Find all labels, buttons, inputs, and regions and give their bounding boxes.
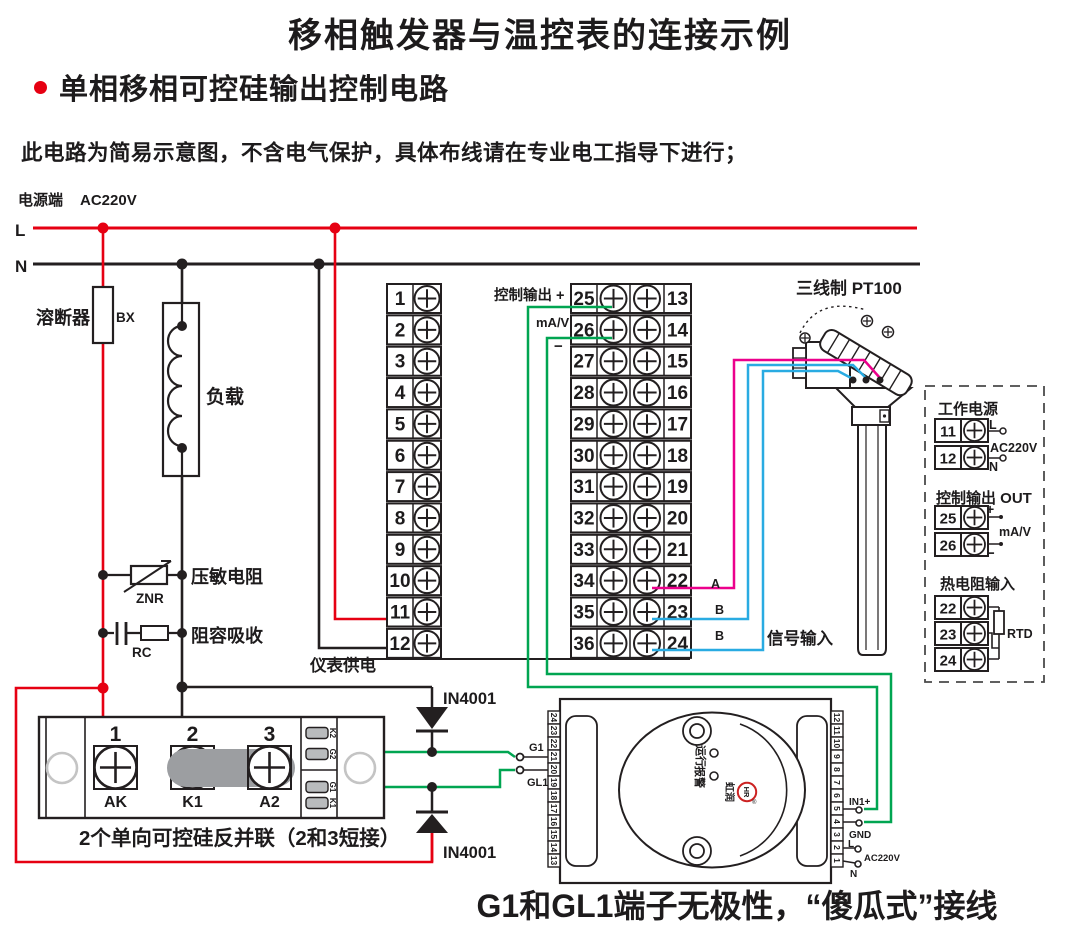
- scr-module: 2个单向可控硅反并联（2和3短接） 1AK2K13A2K2G2G1K1: [39, 717, 400, 850]
- terminal-row: 4: [387, 378, 441, 407]
- terminal-row: 3018: [571, 441, 691, 470]
- terminal-number: 3: [395, 352, 406, 373]
- terminal-number: 14: [549, 843, 559, 853]
- junction-dot: [177, 321, 187, 331]
- scr-terminal-number: 1: [110, 723, 122, 746]
- junction-dot: [98, 628, 108, 638]
- terminal-number: 6: [395, 446, 406, 467]
- hinge-screw-icon: [800, 333, 810, 343]
- run-led-icon: [710, 749, 718, 757]
- varistor-label: 压敏电阻: [191, 566, 263, 587]
- terminal-number: 1: [832, 858, 842, 863]
- terminal-number: 14: [667, 320, 689, 341]
- controller-terminal-block: 1234567891011122513261427152816291730183…: [387, 284, 691, 658]
- terminal-number: 28: [573, 383, 594, 404]
- diode-bottom-label: IN4001: [443, 844, 496, 862]
- junction-dot: [98, 223, 109, 234]
- sensor-wire-dot: [877, 377, 884, 384]
- brand-logo-text: HR: [742, 787, 751, 798]
- trigger-right-terminal: 5: [831, 802, 843, 815]
- terminal-number: 20: [549, 765, 559, 775]
- terminal-number: 25: [940, 511, 957, 528]
- fuse-symbol: [93, 287, 113, 343]
- circuit-diagram: 电源端 AC220V L N 溶断器 BX 负载: [0, 0, 1080, 948]
- trigger-left-terminal: 23: [548, 724, 560, 737]
- terminal-number: 21: [549, 752, 559, 762]
- terminal-number: 23: [940, 627, 957, 644]
- gate-label: G2: [328, 749, 337, 760]
- legend-rtd-label: RTD: [1007, 627, 1033, 641]
- trigger-right-terminal: 2: [831, 841, 843, 854]
- trigger-right-terminal: 6: [831, 789, 843, 802]
- trigger-right-terminal: 8: [831, 763, 843, 776]
- legend-terminal-row: 22: [935, 596, 988, 619]
- pt100-sensor: 三线制 PT100: [793, 278, 915, 655]
- trigger-left-terminal: 16: [548, 815, 560, 828]
- scr-caption: 2个单向可控硅反并联（2和3短接）: [79, 826, 400, 850]
- terminal-number: 8: [395, 508, 406, 529]
- gate-label: K2: [328, 728, 337, 739]
- trigger-left-terminal: 14: [548, 841, 560, 854]
- diode-top-label: IN4001: [443, 690, 496, 708]
- legend-l-ring: [1000, 428, 1006, 434]
- terminal-number: 5: [395, 414, 406, 435]
- terminal-number: 4: [395, 383, 406, 404]
- gate-pad: [306, 798, 328, 809]
- terminal-number: 13: [549, 856, 559, 866]
- diode-triangle-icon: [416, 814, 448, 833]
- terminal-number: 19: [549, 778, 559, 788]
- terminal-row: 2917: [571, 409, 691, 438]
- scr-terminal-label: K1: [182, 794, 203, 811]
- terminal-number: 32: [573, 508, 594, 529]
- terminal-number: 26: [940, 538, 957, 555]
- gate-terminal: K2: [306, 728, 337, 739]
- terminal-number: 18: [549, 791, 559, 801]
- terminal-row: 6: [387, 441, 441, 470]
- controller-output-labels: 控制输出 + mA/V −: [494, 286, 570, 355]
- varistor-code: ZNR: [136, 591, 164, 606]
- signal-input-label: 信号输入: [767, 628, 834, 648]
- terminal-number: 7: [832, 780, 842, 785]
- diode-triangle-icon: [416, 707, 448, 729]
- alarm-led-label: 报警: [693, 766, 707, 788]
- wire-a-label: A: [711, 577, 720, 591]
- terminal-row: 2816: [571, 378, 691, 407]
- trigger-left-terminal: 18: [548, 789, 560, 802]
- trigger-n-label: N: [850, 869, 857, 880]
- cable-gland: [793, 348, 806, 378]
- legend-output-title: 控制输出 OUT: [936, 489, 1032, 507]
- n-terminal-ring: [855, 861, 861, 867]
- trigger-left-terminal: 15: [548, 828, 560, 841]
- scr-terminal-label: A2: [259, 794, 280, 811]
- fuse-label: 溶断器: [36, 307, 91, 328]
- rc-code: RC: [132, 645, 152, 660]
- trigger-module: 运行 报警 虹润 HR ® 24232221201918171615141312…: [548, 699, 843, 883]
- trigger-left-terminal: 24: [548, 711, 560, 724]
- resistor-icon: [141, 626, 168, 640]
- wiring-diagram-page: 移相触发器与温控表的连接示例 单相移相可控硅输出控制电路 此电路为简易示意图，不…: [0, 0, 1080, 948]
- line-l-label: L: [15, 221, 25, 240]
- cap-screw-icon: [862, 316, 873, 327]
- terminal-row: 3321: [571, 535, 691, 564]
- terminal-row: 3624: [571, 629, 691, 658]
- terminal-number: 22: [549, 739, 559, 749]
- terminal-row: 3422: [571, 566, 691, 595]
- fuse-code: BX: [116, 310, 135, 325]
- cap-swing-arc: [800, 306, 866, 333]
- terminal-row: 10: [387, 566, 441, 595]
- terminal-number: 18: [667, 446, 688, 467]
- terminal-row: 9: [387, 535, 441, 564]
- terminal-number: 11: [940, 424, 956, 441]
- power-voltage-label: AC220V: [80, 192, 137, 209]
- terminal-number: 12: [389, 634, 410, 655]
- brand-reg-mark: ®: [752, 799, 757, 806]
- gate-terminal: G2: [306, 749, 337, 760]
- terminal-number: 19: [667, 477, 688, 498]
- fuse-branch: 溶断器 BX: [36, 228, 135, 762]
- terminal-number: 5: [832, 806, 842, 811]
- terminal-number: 3: [832, 832, 842, 837]
- terminal-number: 2: [832, 845, 842, 850]
- power-rails: 电源端 AC220V L N: [15, 191, 920, 276]
- trigger-left-terminal: 13: [548, 854, 560, 867]
- terminal-number: 30: [573, 446, 594, 467]
- terminal-number: 16: [549, 817, 559, 827]
- terminal-row: 12: [387, 629, 441, 658]
- cap-screw-icon: [883, 327, 894, 338]
- gl1-terminal-ring: [517, 767, 524, 774]
- terminal-number: 36: [573, 634, 594, 655]
- trigger-right-terminal: 7: [831, 776, 843, 789]
- junction-dot: [177, 443, 187, 453]
- terminal-number: 1: [395, 289, 406, 310]
- junction-dot: [177, 259, 188, 270]
- rtd-resistor-icon: [994, 611, 1004, 634]
- terminal-number: 17: [549, 804, 559, 814]
- junction-dot: [314, 259, 325, 270]
- wire-b2-label: B: [715, 629, 724, 643]
- terminal-number: 34: [573, 571, 595, 592]
- scr-terminal-number: 3: [264, 723, 276, 746]
- trigger-right-terminal: 4: [831, 815, 843, 828]
- line-n-label: N: [15, 257, 27, 276]
- legend-rtd-title: 热电阻输入: [940, 575, 1015, 593]
- gate-terminal: G1: [306, 782, 337, 793]
- trigger-right-terminal: 9: [831, 750, 843, 763]
- terminal-number: 11: [390, 603, 411, 624]
- power-source-label: 电源端: [18, 191, 63, 209]
- junction-dot: [177, 570, 187, 580]
- sensor-wire-dot: [863, 377, 870, 384]
- wire-b1-label: B: [715, 603, 724, 617]
- trigger-left-terminal: 17: [548, 802, 560, 815]
- g1-gl1-links: G1 GL1: [517, 742, 549, 789]
- alarm-led-icon: [710, 772, 718, 780]
- terminal-number: 2: [395, 320, 406, 341]
- junction-dot: [177, 682, 188, 693]
- boss-screw-icon: [683, 837, 711, 865]
- terminal-number: 10: [832, 739, 842, 749]
- trigger-right-terminal: 10: [831, 737, 843, 750]
- terminal-row: 3523: [571, 598, 691, 627]
- gate-pad: [306, 782, 328, 793]
- legend-terminal-row: 11: [935, 419, 988, 442]
- gate-label: G1: [328, 782, 337, 793]
- terminal-number: 29: [573, 414, 594, 435]
- junction-dot: [427, 747, 437, 757]
- terminal-row: 5: [387, 409, 441, 438]
- g1-label: G1: [529, 742, 544, 754]
- terminal-number: 24: [667, 634, 689, 655]
- terminal-number: 16: [667, 383, 688, 404]
- terminal-number: 9: [832, 754, 842, 759]
- terminal-number: 35: [573, 603, 595, 624]
- terminal-row: 2614: [571, 315, 691, 344]
- boss-screw-icon: [683, 717, 711, 745]
- trigger-left-terminal: 22: [548, 737, 560, 750]
- terminal-number: 12: [832, 713, 842, 723]
- footer-caption: G1和GL1端子无极性，“傻瓜式”接线: [477, 888, 998, 924]
- sensor-label: 三线制 PT100: [796, 278, 902, 298]
- junction-dot: [427, 782, 437, 792]
- terminal-row: 8: [387, 503, 441, 532]
- terminal-number: 24: [940, 653, 957, 670]
- legend-terminal-row: 25: [935, 506, 988, 529]
- terminal-row: 11: [387, 598, 441, 627]
- terminal-number: 4: [832, 819, 842, 824]
- terminal-number: 33: [573, 540, 594, 561]
- terminal-number: 21: [667, 540, 689, 561]
- terminal-row: 1: [387, 284, 441, 313]
- gate-terminal: K1: [306, 798, 337, 809]
- legend-n-ring: [1000, 455, 1006, 461]
- terminal-number: 24: [549, 713, 559, 723]
- trigger-right-terminal: 12: [831, 711, 843, 724]
- terminal-row: 2: [387, 315, 441, 344]
- probe-shaft: [858, 425, 886, 655]
- control-output-unit: mA/V: [536, 315, 570, 330]
- junction-dot: [98, 683, 109, 694]
- terminal-number: 27: [573, 352, 594, 373]
- legend-unit-label: mA/V: [999, 525, 1032, 539]
- gate-pad: [306, 749, 328, 760]
- legend-panel: 工作电源 L AC220V N 控制输出 OUT + mA/V − 热电阻输入 …: [925, 386, 1044, 682]
- terminal-number: 15: [549, 830, 559, 840]
- trigger-voltage-label: AC220V: [864, 853, 901, 864]
- trigger-left-terminal: 19: [548, 776, 560, 789]
- terminal-number: 8: [832, 767, 842, 772]
- trigger-left-terminal: 20: [548, 763, 560, 776]
- gate-label: K1: [328, 798, 337, 809]
- legend-power-title: 工作电源: [938, 400, 998, 418]
- terminal-number: 15: [667, 352, 689, 373]
- gate-pad: [306, 728, 328, 739]
- diode-bottom: IN4001: [416, 787, 496, 862]
- g1-terminal-ring: [517, 754, 524, 761]
- control-output-label: 控制输出 +: [494, 286, 565, 304]
- junction-dot: [330, 223, 341, 234]
- set-screw-dot: [883, 414, 886, 417]
- terminal-row: 2715: [571, 347, 691, 376]
- gl1-label: GL1: [527, 777, 548, 789]
- trigger-left-terminal: 21: [548, 750, 560, 763]
- terminal-row: 2513: [571, 284, 691, 313]
- legend-voltage-label: AC220V: [990, 441, 1038, 455]
- run-led-label: 运行: [694, 745, 708, 767]
- terminal-number: 10: [389, 571, 410, 592]
- trigger-right-terminal: 1: [831, 854, 843, 867]
- scr-terminal-label: AK: [104, 794, 128, 811]
- trigger-right-terminal: 3: [831, 828, 843, 841]
- stub-dot: [999, 542, 1003, 546]
- terminal-row: 3119: [571, 472, 691, 501]
- terminal-number: 13: [667, 289, 688, 310]
- terminal-number: 6: [832, 793, 842, 798]
- trigger-l-label: L: [848, 839, 854, 850]
- trigger-right-terminal: 11: [831, 724, 843, 737]
- terminal-number: 31: [573, 477, 595, 498]
- terminal-number: 22: [940, 601, 957, 618]
- l-terminal-ring: [855, 846, 861, 852]
- legend-terminal-row: 26: [935, 533, 988, 556]
- stub-dot: [999, 515, 1003, 519]
- terminal-number: 23: [667, 603, 688, 624]
- legend-l-label: L: [989, 418, 997, 432]
- load-label: 负载: [206, 385, 244, 408]
- rc-label: 阻容吸收: [191, 625, 263, 646]
- legend-terminal-row: 24: [935, 648, 988, 671]
- terminal-row: 3: [387, 347, 441, 376]
- junction-dot: [98, 570, 108, 580]
- brand-label: 虹润: [723, 782, 736, 802]
- terminal-number: 20: [667, 508, 688, 529]
- legend-terminal-row: 23: [935, 622, 988, 645]
- terminal-number: 23: [549, 726, 559, 736]
- terminal-number: 17: [667, 414, 688, 435]
- sensor-wire-dot: [850, 377, 857, 384]
- in1-label: IN1+: [849, 797, 871, 808]
- junction-dot: [177, 628, 187, 638]
- trigger-slot: [566, 716, 597, 866]
- terminal-number: 9: [395, 540, 406, 561]
- trigger-dial: [619, 713, 805, 868]
- scr-terminal-number: 2: [187, 723, 199, 746]
- terminal-number: 11: [832, 726, 842, 735]
- capacitor-icon: [117, 622, 126, 645]
- control-output-minus: −: [554, 338, 563, 355]
- terminal-row: 3220: [571, 503, 691, 532]
- gnd-terminal-ring: [856, 820, 862, 826]
- terminal-number: 7: [395, 477, 406, 498]
- legend-terminal-row: 12: [935, 446, 988, 469]
- terminal-number: 12: [940, 451, 957, 468]
- terminal-row: 7: [387, 472, 441, 501]
- legend-n-label: N: [989, 460, 998, 474]
